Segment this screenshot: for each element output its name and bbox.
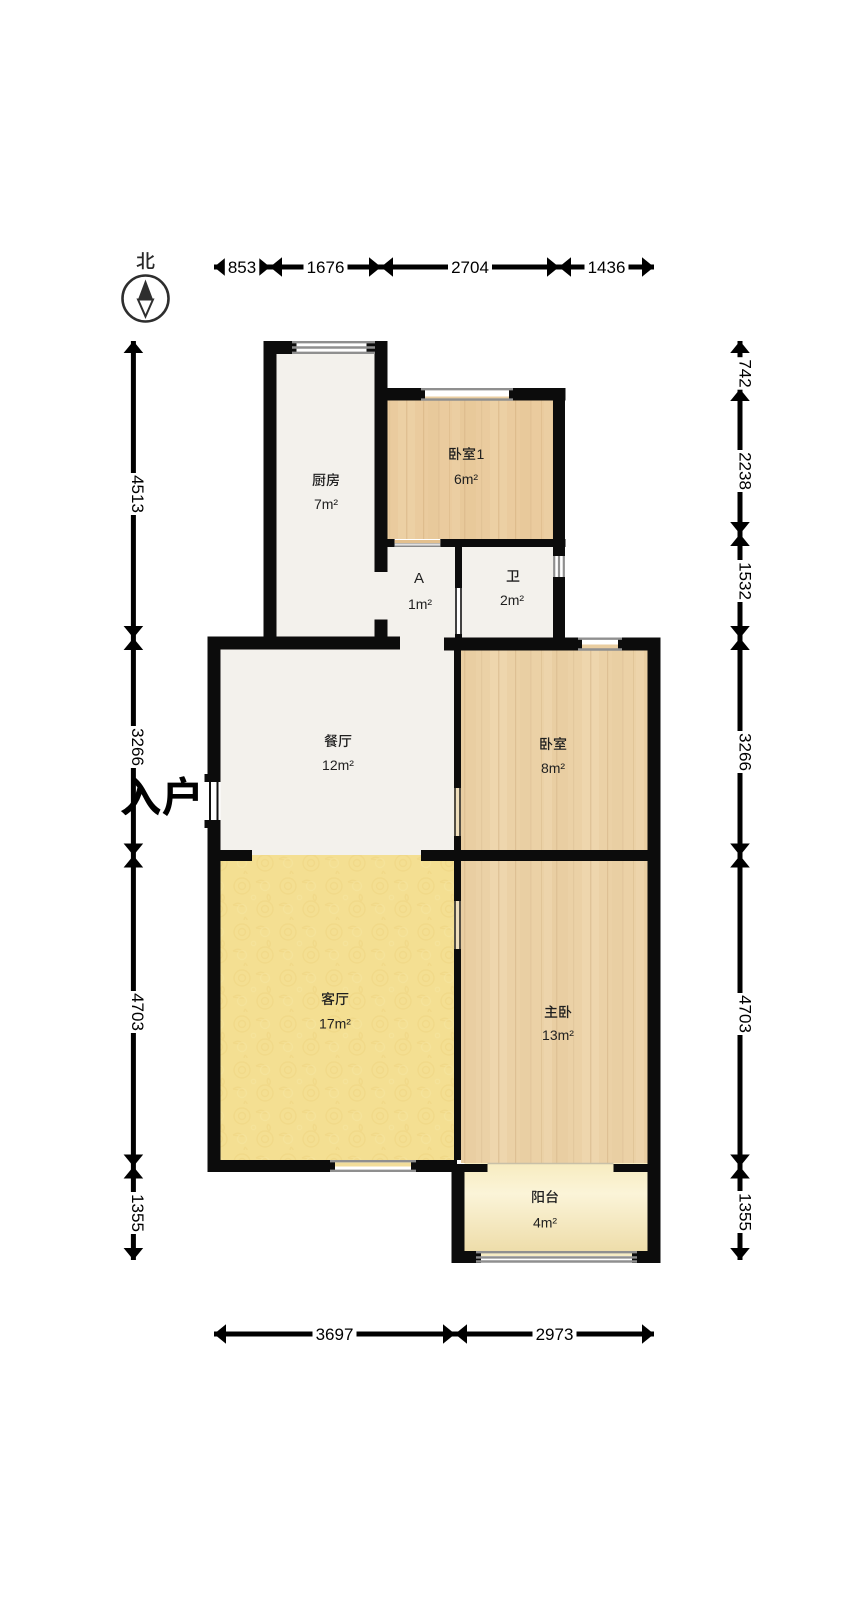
- svg-text:1355: 1355: [128, 1194, 147, 1232]
- svg-text:12m²: 12m²: [322, 757, 354, 773]
- svg-text:3266: 3266: [128, 728, 147, 766]
- svg-text:13m²: 13m²: [542, 1027, 574, 1043]
- svg-text:1355: 1355: [736, 1193, 755, 1231]
- svg-text:2973: 2973: [536, 1325, 574, 1344]
- svg-text:4703: 4703: [736, 995, 755, 1033]
- svg-text:6m²: 6m²: [454, 471, 478, 487]
- svg-text:4513: 4513: [128, 475, 147, 513]
- svg-text:1436: 1436: [588, 258, 626, 277]
- svg-text:7m²: 7m²: [314, 496, 338, 512]
- svg-text:1: 1: [477, 446, 485, 462]
- svg-text:17m²: 17m²: [319, 1016, 351, 1032]
- svg-text:2m²: 2m²: [500, 592, 524, 608]
- svg-text:A: A: [414, 570, 424, 587]
- svg-text:853: 853: [228, 258, 256, 277]
- svg-text:4m²: 4m²: [533, 1215, 557, 1231]
- svg-text:2704: 2704: [451, 258, 489, 277]
- svg-text:1676: 1676: [307, 258, 345, 277]
- svg-text:742: 742: [736, 359, 755, 387]
- svg-text:1532: 1532: [736, 562, 755, 600]
- svg-text:8m²: 8m²: [541, 760, 565, 776]
- svg-text:4703: 4703: [128, 993, 147, 1031]
- svg-text:2238: 2238: [736, 452, 755, 490]
- svg-text:3697: 3697: [316, 1325, 354, 1344]
- svg-text:1m²: 1m²: [408, 596, 432, 612]
- svg-text:3266: 3266: [736, 733, 755, 771]
